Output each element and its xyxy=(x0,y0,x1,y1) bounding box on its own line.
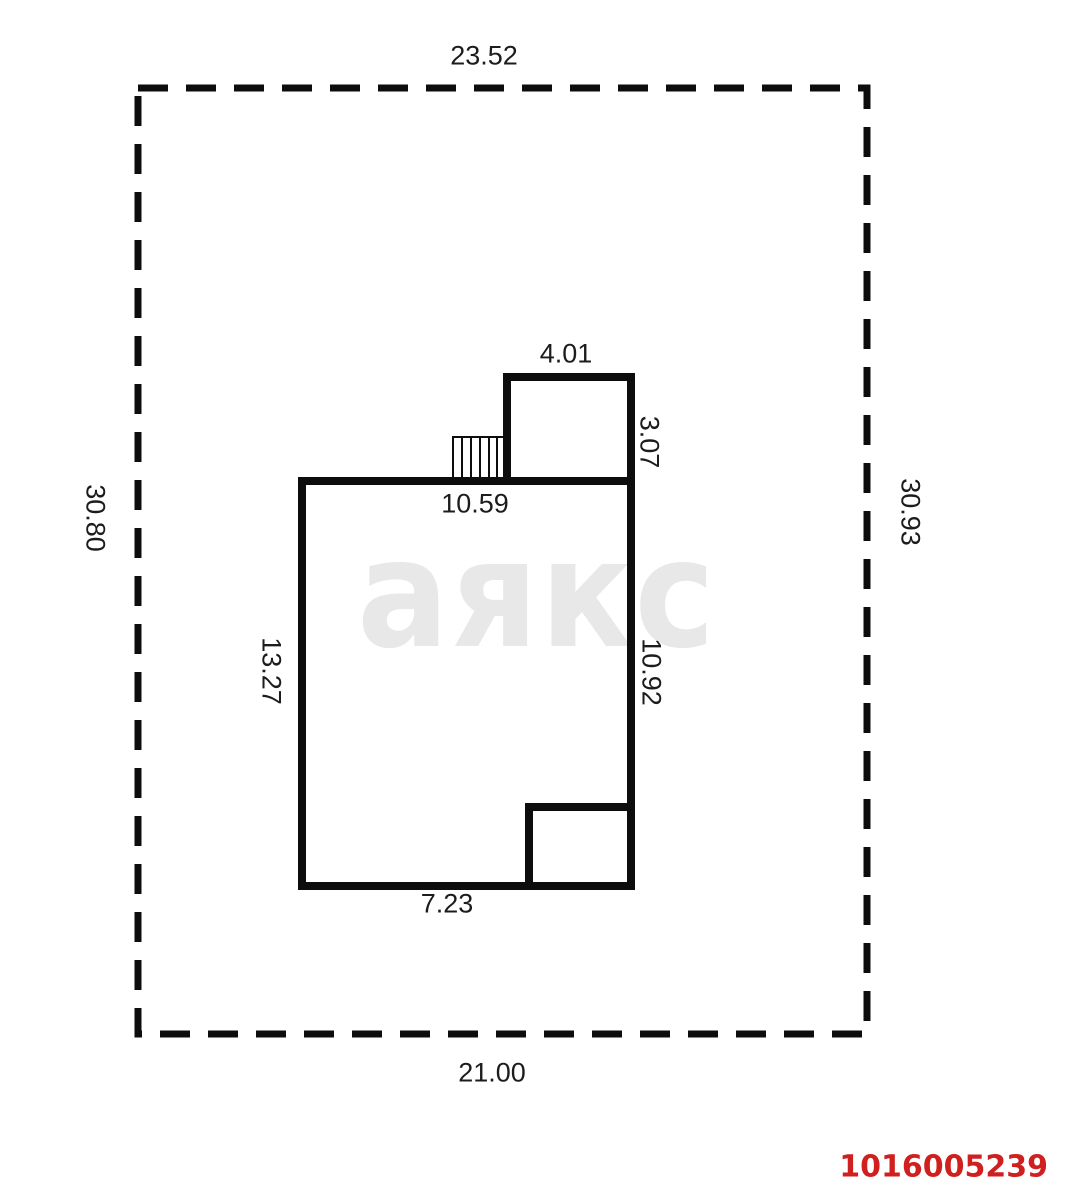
site-dimension-left: 30.80 xyxy=(81,484,111,552)
stairs-treads xyxy=(462,437,489,477)
site-plan-canvas: аякс 23.52 30.80 30.93 21.00 4.01 3.07 1… xyxy=(0,0,1070,1184)
annex-dimension-top: 4.01 xyxy=(540,338,593,368)
building-dimension-top: 10.59 xyxy=(441,488,509,518)
stairs-symbol xyxy=(453,437,507,477)
plan-id-number: 1016005239 xyxy=(839,1150,1048,1184)
site-dimension-top: 23.52 xyxy=(450,40,518,70)
site-dimension-bottom: 21.00 xyxy=(458,1057,526,1087)
floor-plan-page: аякс 23.52 30.80 30.93 21.00 4.01 3.07 1… xyxy=(0,0,1070,1184)
building-dimension-left: 13.27 xyxy=(257,637,287,705)
building-annex-outline xyxy=(507,377,631,481)
building-dimension-right: 10.92 xyxy=(637,638,667,706)
annex-dimension-right: 3.07 xyxy=(635,416,665,469)
building-inner-room-outline xyxy=(529,807,631,886)
site-dimension-right: 30.93 xyxy=(896,478,926,546)
building-dimension-bottom: 7.23 xyxy=(421,888,474,918)
